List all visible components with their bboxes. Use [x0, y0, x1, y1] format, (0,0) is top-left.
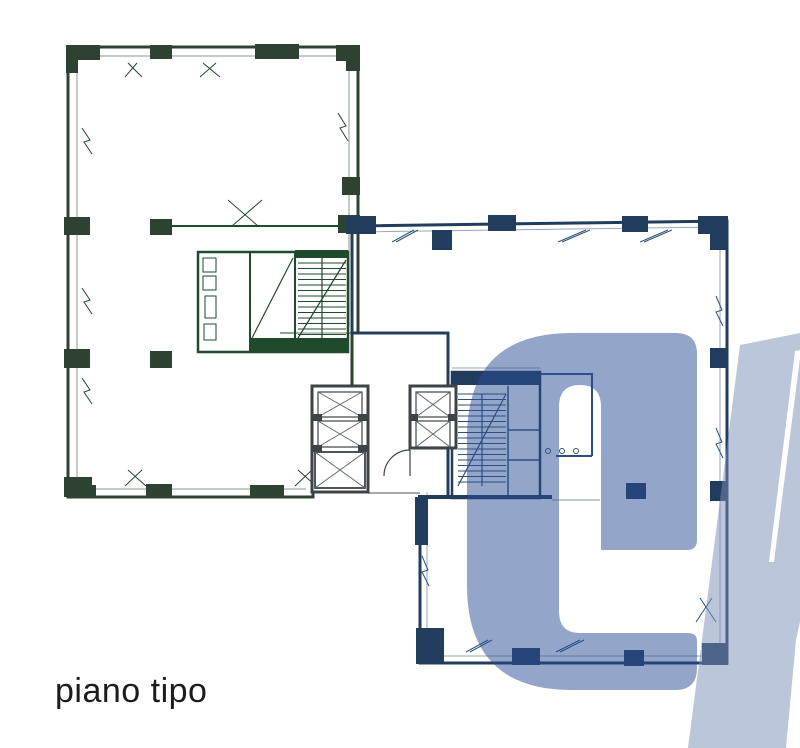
floor-plan-drawing [0, 0, 800, 748]
watermark-letter-fragment [688, 333, 800, 748]
watermark [467, 333, 800, 748]
watermark-letter-c [467, 333, 697, 690]
floor-plan-image: piano tipo [0, 0, 800, 748]
core-door-swing [384, 450, 410, 476]
core-elevators [312, 386, 456, 493]
green-stairwell [252, 258, 346, 338]
caption-piano-tipo: piano tipo [55, 672, 207, 711]
wc-fixtures [203, 258, 216, 340]
